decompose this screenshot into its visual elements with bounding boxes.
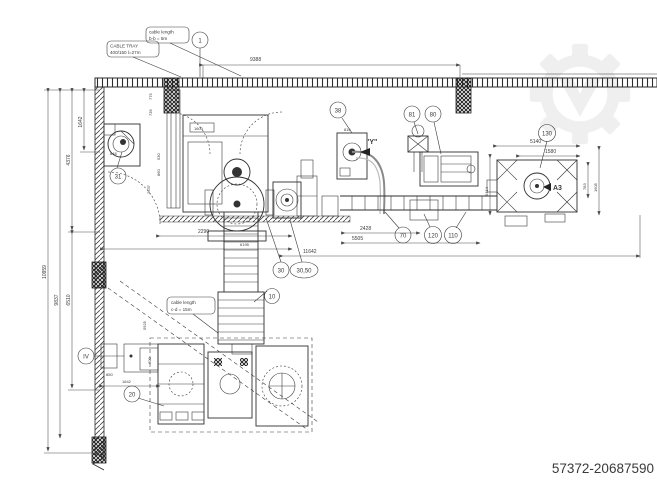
callout-70: 70 [400, 234, 407, 240]
dim-860: 860 [156, 169, 161, 176]
cable-length-mid-box: cable length c-d = 15m [167, 297, 218, 333]
dim-5414: 5414 [484, 186, 489, 196]
dim-850: 850 [106, 372, 113, 377]
door-swing-arc [240, 112, 282, 154]
valve-unit [408, 125, 428, 172]
machine-cluster-bottom [150, 338, 312, 432]
dashed-guides [108, 112, 318, 430]
callout-81: 81 [409, 113, 416, 119]
floor-strip [160, 216, 350, 222]
view-a3-label: A3 [553, 185, 562, 192]
dim-9388: 9388 [250, 57, 261, 63]
dim-1642: 1642 [78, 116, 84, 127]
column [164, 78, 179, 113]
cable-length-mid-l1: cable length [171, 300, 196, 305]
dim-5505: 5505 [352, 236, 363, 242]
dim-1580: 1580 [545, 149, 556, 155]
callout-120: 120 [428, 234, 439, 240]
dim-816: 816 [344, 127, 351, 132]
dim-11642: 11642 [303, 249, 317, 255]
callout-130: 130 [542, 132, 553, 138]
callout-80: 80 [430, 113, 437, 119]
dim-775: 775 [148, 93, 153, 100]
wall-pier [92, 262, 106, 288]
cable-length-top-l2: b-b = 5m [149, 36, 167, 41]
dim-530: 530 [156, 153, 161, 160]
rotary-machine [205, 159, 274, 241]
dim-735: 735 [148, 109, 153, 116]
column [456, 78, 471, 113]
wall-pier [92, 437, 106, 463]
press-unit [297, 160, 338, 216]
hose-pipes [352, 152, 384, 214]
feeder-machine [420, 152, 478, 186]
dim-9837: 9837 [54, 294, 60, 305]
cable-tray-l2: 400/150 l=27m [110, 50, 141, 55]
cable-length-top-l1: cable length [149, 30, 174, 35]
cable-tray-box: CABLE TRAY 400/150 l=27m [107, 41, 181, 77]
door-swing-arc [168, 112, 210, 154]
dim-5140: 5140 [530, 139, 541, 145]
cable-length-mid-l2: c-d = 15m [171, 307, 192, 312]
callout-31: 31 [115, 175, 122, 181]
dim-1605: 1605 [593, 182, 598, 192]
listing-id-text: 57372-20687590 [552, 461, 654, 476]
callout-38: 38 [335, 109, 342, 115]
callout-30: 30 [278, 269, 285, 275]
dim-783: 783 [582, 183, 587, 190]
dim-5925: 5925 [142, 320, 147, 330]
layout-drawing-page: 10959 9837 4376 6510 1642 9388 cable len… [0, 0, 657, 480]
vertical-conveyor [218, 212, 264, 354]
dim-600: 600 [147, 357, 152, 364]
cable-tray-l1: CABLE TRAY [110, 44, 138, 49]
view-y-label: "Y" [366, 139, 377, 146]
callout-10: 10 [269, 295, 276, 301]
dim-4376: 4376 [66, 154, 72, 165]
top-dimension: 9388 [203, 57, 460, 78]
dim-1600: 1600 [194, 126, 204, 131]
callout-30-50: 30,50 [296, 269, 312, 275]
view-y-arrow-icon [360, 148, 370, 156]
press-frame: A3 [487, 160, 577, 226]
view-y-marker: "Y" [360, 139, 377, 156]
dim-848: 848 [110, 151, 117, 156]
callout-1: 1 [198, 39, 202, 45]
callout-110: 110 [448, 234, 458, 240]
dim-2290: 2290 [198, 229, 209, 235]
fan-unit: 848 [104, 124, 140, 166]
dim-2428: 2428 [360, 226, 371, 232]
gear-watermark-icon [530, 44, 630, 144]
wall-opening-group: 600 850 1642 5925 [101, 320, 160, 386]
dim-1642b: 1642 [122, 379, 132, 384]
callout-20: 20 [129, 393, 136, 399]
callout-iv: IV [83, 355, 89, 361]
dim-6510: 6510 [66, 294, 72, 305]
right-dimensions: 5140 1580 783 1605 5414 [484, 139, 599, 215]
dim-10959: 10959 [42, 265, 48, 279]
control-cabinet: 1600 [183, 115, 268, 212]
dim-6195: 6195 [240, 242, 250, 247]
view-a3-arrow-icon [543, 183, 551, 191]
dim-2637: 2637 [146, 184, 151, 194]
left-dimension-chain: 10959 9837 4376 6510 1642 [42, 90, 100, 453]
roller-conveyor [340, 196, 497, 220]
plant-layout-drawing: 10959 9837 4376 6510 1642 9388 cable len… [0, 0, 657, 480]
